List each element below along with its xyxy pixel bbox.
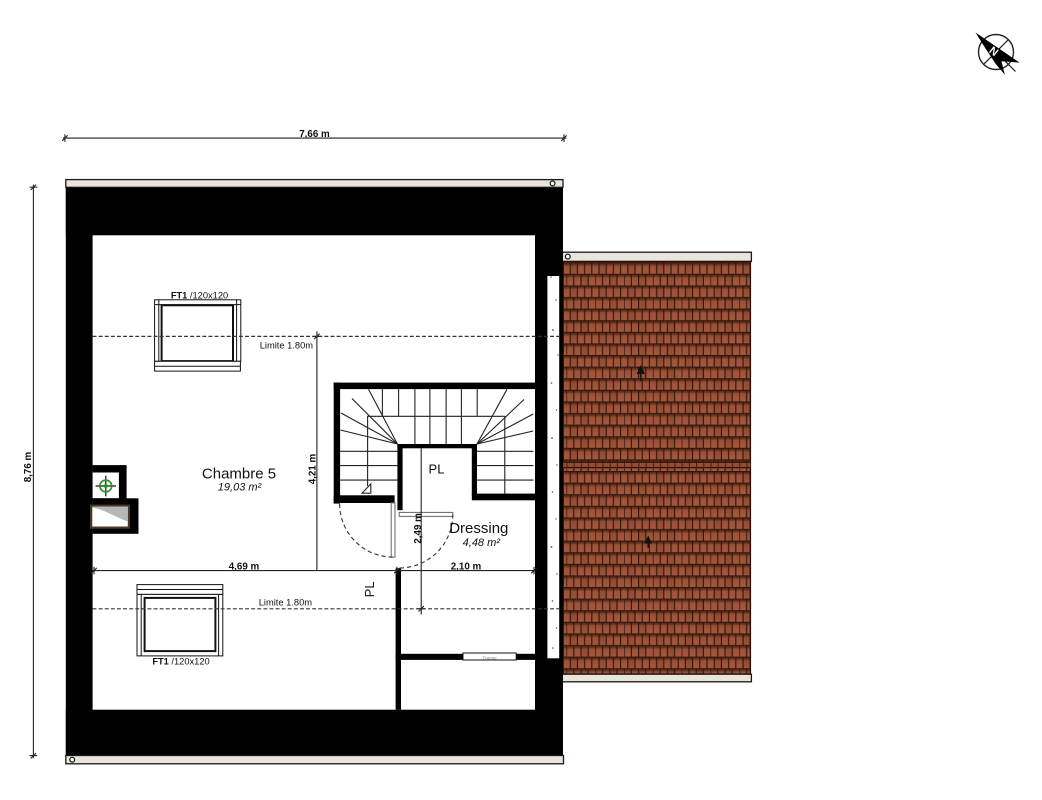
svg-text:Chambre 5: Chambre 5 [202, 466, 276, 483]
svg-text:Limite 1.80m: Limite 1.80m [260, 340, 313, 350]
svg-text:4,21 m: 4,21 m [307, 453, 318, 484]
svg-text:Dressing: Dressing [449, 520, 508, 537]
svg-text:PL: PL [362, 581, 377, 597]
svg-text:19,03 m²: 19,03 m² [218, 481, 262, 493]
svg-text:4,69 m: 4,69 m [229, 561, 260, 572]
svg-text:PL: PL [429, 461, 445, 476]
svg-text:Limite 1.80m: Limite 1.80m [259, 597, 312, 607]
svg-text:8,76 m: 8,76 m [23, 451, 34, 482]
svg-text:2,49 m: 2,49 m [413, 513, 424, 544]
svg-text:Trappe: Trappe [483, 655, 498, 660]
svg-text:FT1 /120x120: FT1 /120x120 [171, 290, 228, 300]
svg-text:7,66 m: 7,66 m [299, 129, 330, 140]
svg-text:2,10 m: 2,10 m [451, 561, 482, 572]
svg-text:4,48 m²: 4,48 m² [463, 537, 501, 549]
svg-text:FT1 /120x120: FT1 /120x120 [152, 657, 209, 667]
